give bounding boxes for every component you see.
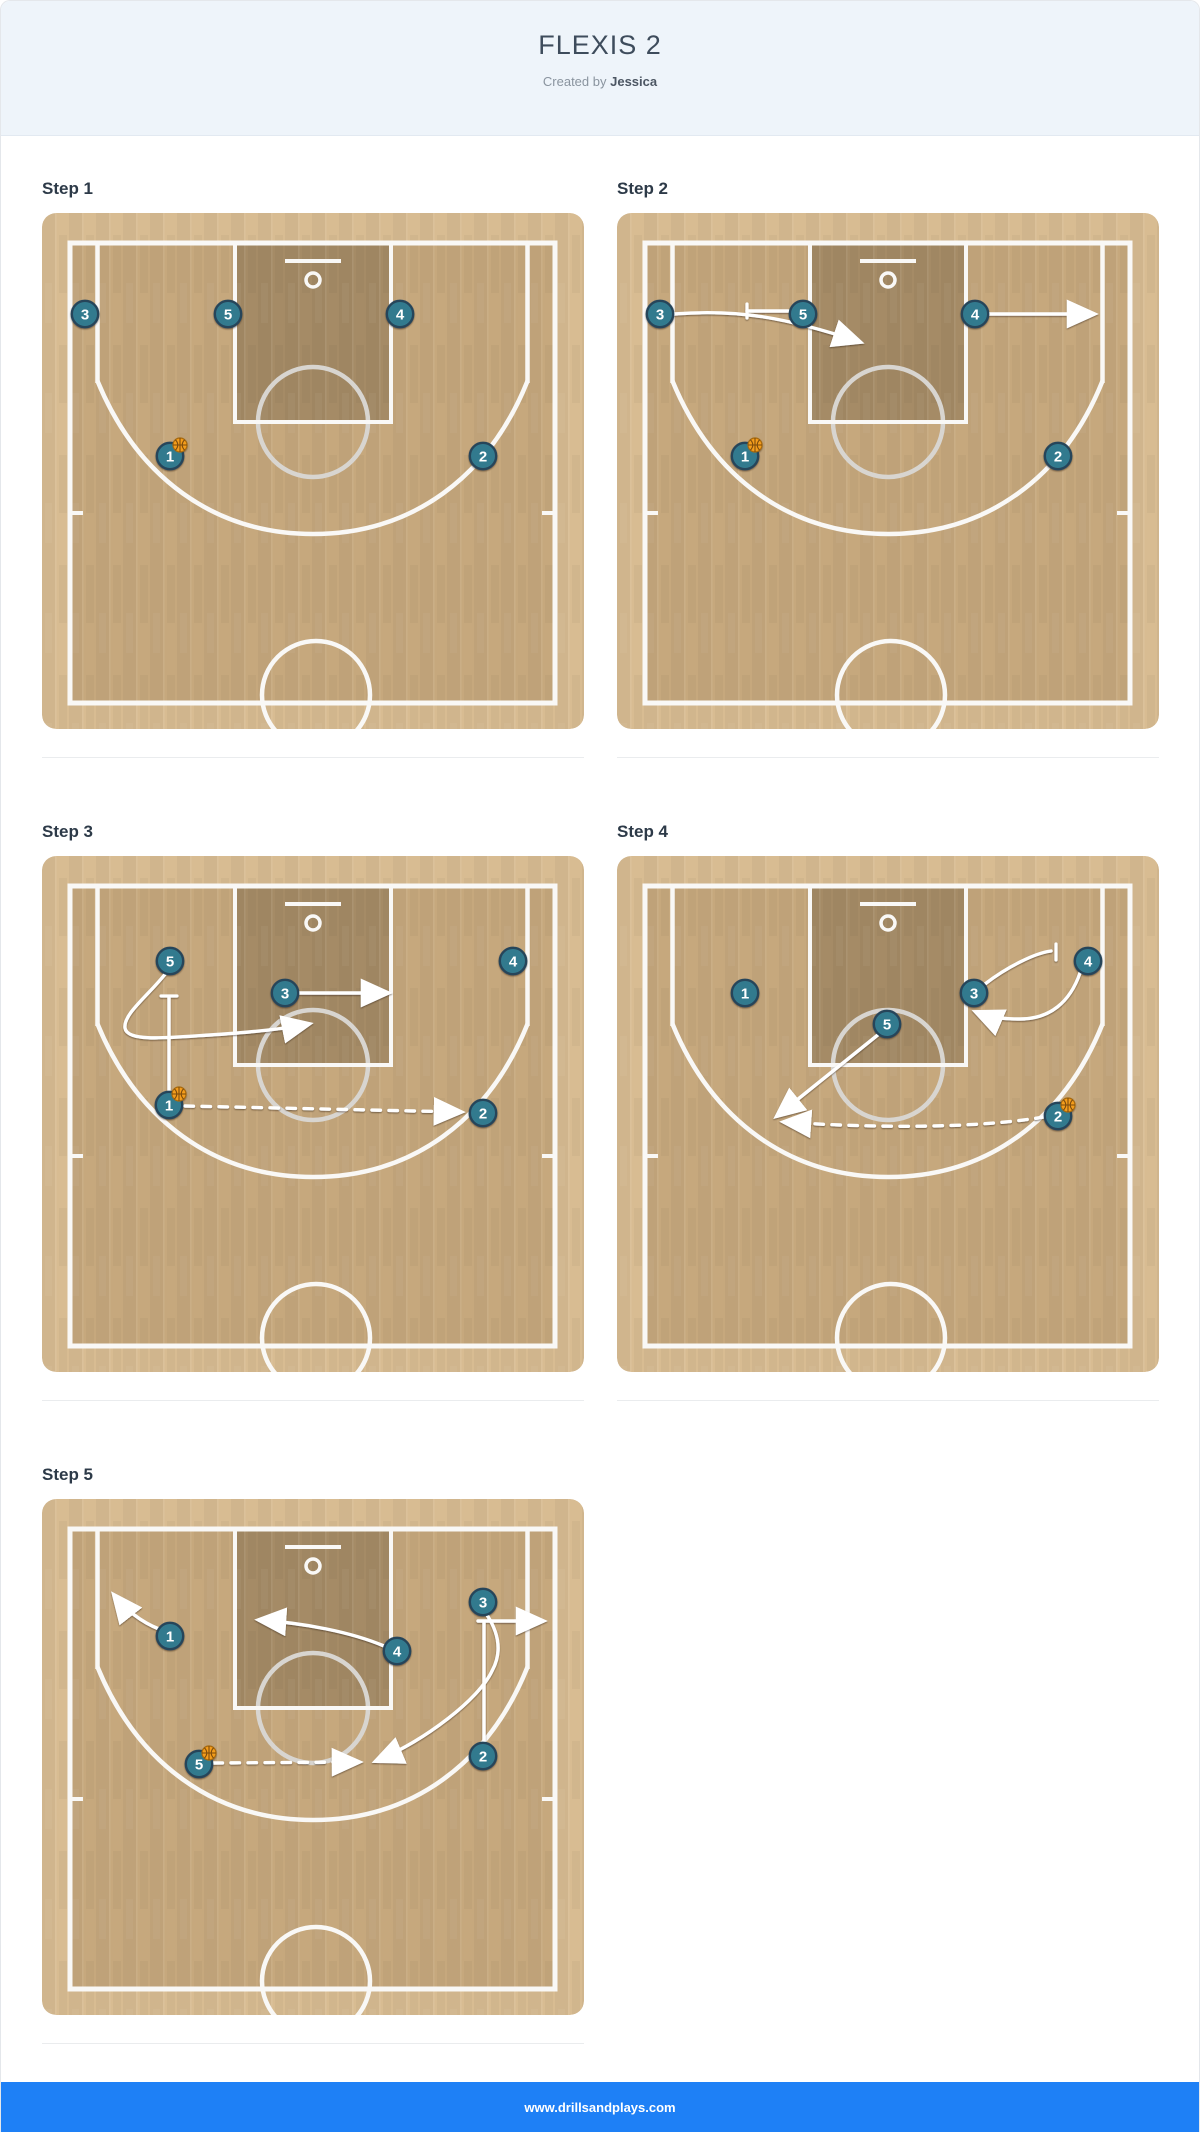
player-2: 2	[470, 1100, 496, 1126]
step-5-section: Step 5 1 4 3 2 5	[42, 1465, 584, 2044]
court-diagram-step-2: 3 5 4 1 2	[617, 213, 1159, 729]
svg-text:5: 5	[883, 1016, 891, 1033]
svg-text:5: 5	[166, 953, 174, 970]
step-1-title: Step 1	[42, 179, 584, 198]
basketball-icon	[202, 1746, 216, 1760]
player-5: 5	[215, 301, 241, 327]
step-4-section: Step 4 1 3 5 4 2	[617, 822, 1159, 1401]
byline: Created by Jessica	[1, 74, 1199, 89]
step-5-title: Step 5	[42, 1465, 584, 1484]
svg-text:1: 1	[166, 1628, 174, 1645]
svg-text:2: 2	[1054, 448, 1062, 465]
wood-texture	[42, 213, 584, 729]
svg-text:2: 2	[479, 1748, 487, 1765]
wood-texture	[617, 856, 1159, 1372]
player-1: 1	[732, 980, 758, 1006]
player-2: 2	[470, 443, 496, 469]
svg-text:4: 4	[1084, 953, 1093, 970]
created-by-label: Created by	[543, 74, 607, 89]
svg-text:3: 3	[81, 306, 89, 323]
player-5: 5	[157, 948, 183, 974]
court-diagram-step-3: 5 3 4 1 2	[42, 856, 584, 1372]
basketball-icon	[1061, 1098, 1075, 1112]
steps-row-1: Step 1 3 5 4 1 2	[42, 179, 1158, 758]
svg-text:5: 5	[195, 1756, 203, 1773]
svg-text:2: 2	[1054, 1108, 1062, 1125]
player-4: 4	[1075, 948, 1101, 974]
header: FLEXIS 2 Created by Jessica	[1, 1, 1199, 136]
footer-link[interactable]: www.drillsandplays.com	[524, 2100, 675, 2115]
player-2: 2	[470, 1743, 496, 1769]
player-3: 3	[272, 980, 298, 1006]
author-name: Jessica	[610, 74, 657, 89]
player-4: 4	[387, 301, 413, 327]
player-4: 4	[384, 1638, 410, 1664]
svg-text:4: 4	[509, 953, 518, 970]
player-3: 3	[961, 980, 987, 1006]
step-4-title: Step 4	[617, 822, 1159, 841]
player-4: 4	[500, 948, 526, 974]
step-2-section: Step 2 3 5 4 1 2	[617, 179, 1159, 758]
wood-texture	[42, 856, 584, 1372]
wood-texture	[42, 1499, 584, 2015]
svg-text:5: 5	[799, 306, 807, 323]
basketball-icon	[748, 438, 762, 452]
svg-text:1: 1	[166, 448, 174, 465]
svg-text:4: 4	[393, 1643, 402, 1660]
player-3: 3	[647, 301, 673, 327]
svg-text:1: 1	[741, 448, 749, 465]
svg-text:3: 3	[656, 306, 664, 323]
svg-text:2: 2	[479, 1105, 487, 1122]
footer-bar: www.drillsandplays.com	[1, 2082, 1199, 2132]
svg-text:3: 3	[281, 985, 289, 1002]
divider	[42, 1400, 584, 1401]
court-diagram-step-1: 3 5 4 1 2	[42, 213, 584, 729]
player-5: 5	[874, 1011, 900, 1037]
svg-text:3: 3	[479, 1594, 487, 1611]
player-1: 1	[157, 1623, 183, 1649]
svg-text:4: 4	[971, 306, 980, 323]
svg-text:3: 3	[970, 985, 978, 1002]
basketball-icon	[173, 438, 187, 452]
court-diagram-step-5: 1 4 3 2 5	[42, 1499, 584, 2015]
steps-grid: Step 1 3 5 4 1 2	[1, 136, 1199, 2082]
steps-row-3: Step 5 1 4 3 2 5	[42, 1465, 1158, 2044]
step-3-section: Step 3 5 3 4 1 2	[42, 822, 584, 1401]
divider	[617, 1400, 1159, 1401]
svg-text:1: 1	[741, 985, 749, 1002]
svg-text:1: 1	[165, 1097, 173, 1114]
pass-path	[214, 1762, 359, 1763]
player-3: 3	[470, 1589, 496, 1615]
player-5: 5	[790, 301, 816, 327]
svg-text:5: 5	[224, 306, 232, 323]
player-3: 3	[72, 301, 98, 327]
step-3-title: Step 3	[42, 822, 584, 841]
divider	[42, 757, 584, 758]
step-1-section: Step 1 3 5 4 1 2	[42, 179, 584, 758]
player-2: 2	[1045, 443, 1071, 469]
page: FLEXIS 2 Created by Jessica Step 1 3	[0, 0, 1200, 2132]
svg-text:2: 2	[479, 448, 487, 465]
wood-texture	[617, 213, 1159, 729]
divider	[42, 2043, 584, 2044]
steps-row-2: Step 3 5 3 4 1 2	[42, 822, 1158, 1401]
basketball-icon	[172, 1087, 186, 1101]
player-4: 4	[962, 301, 988, 327]
page-title: FLEXIS 2	[1, 30, 1199, 61]
svg-text:4: 4	[396, 306, 405, 323]
divider	[617, 757, 1159, 758]
step-2-title: Step 2	[617, 179, 1159, 198]
court-diagram-step-4: 1 3 5 4 2	[617, 856, 1159, 1372]
